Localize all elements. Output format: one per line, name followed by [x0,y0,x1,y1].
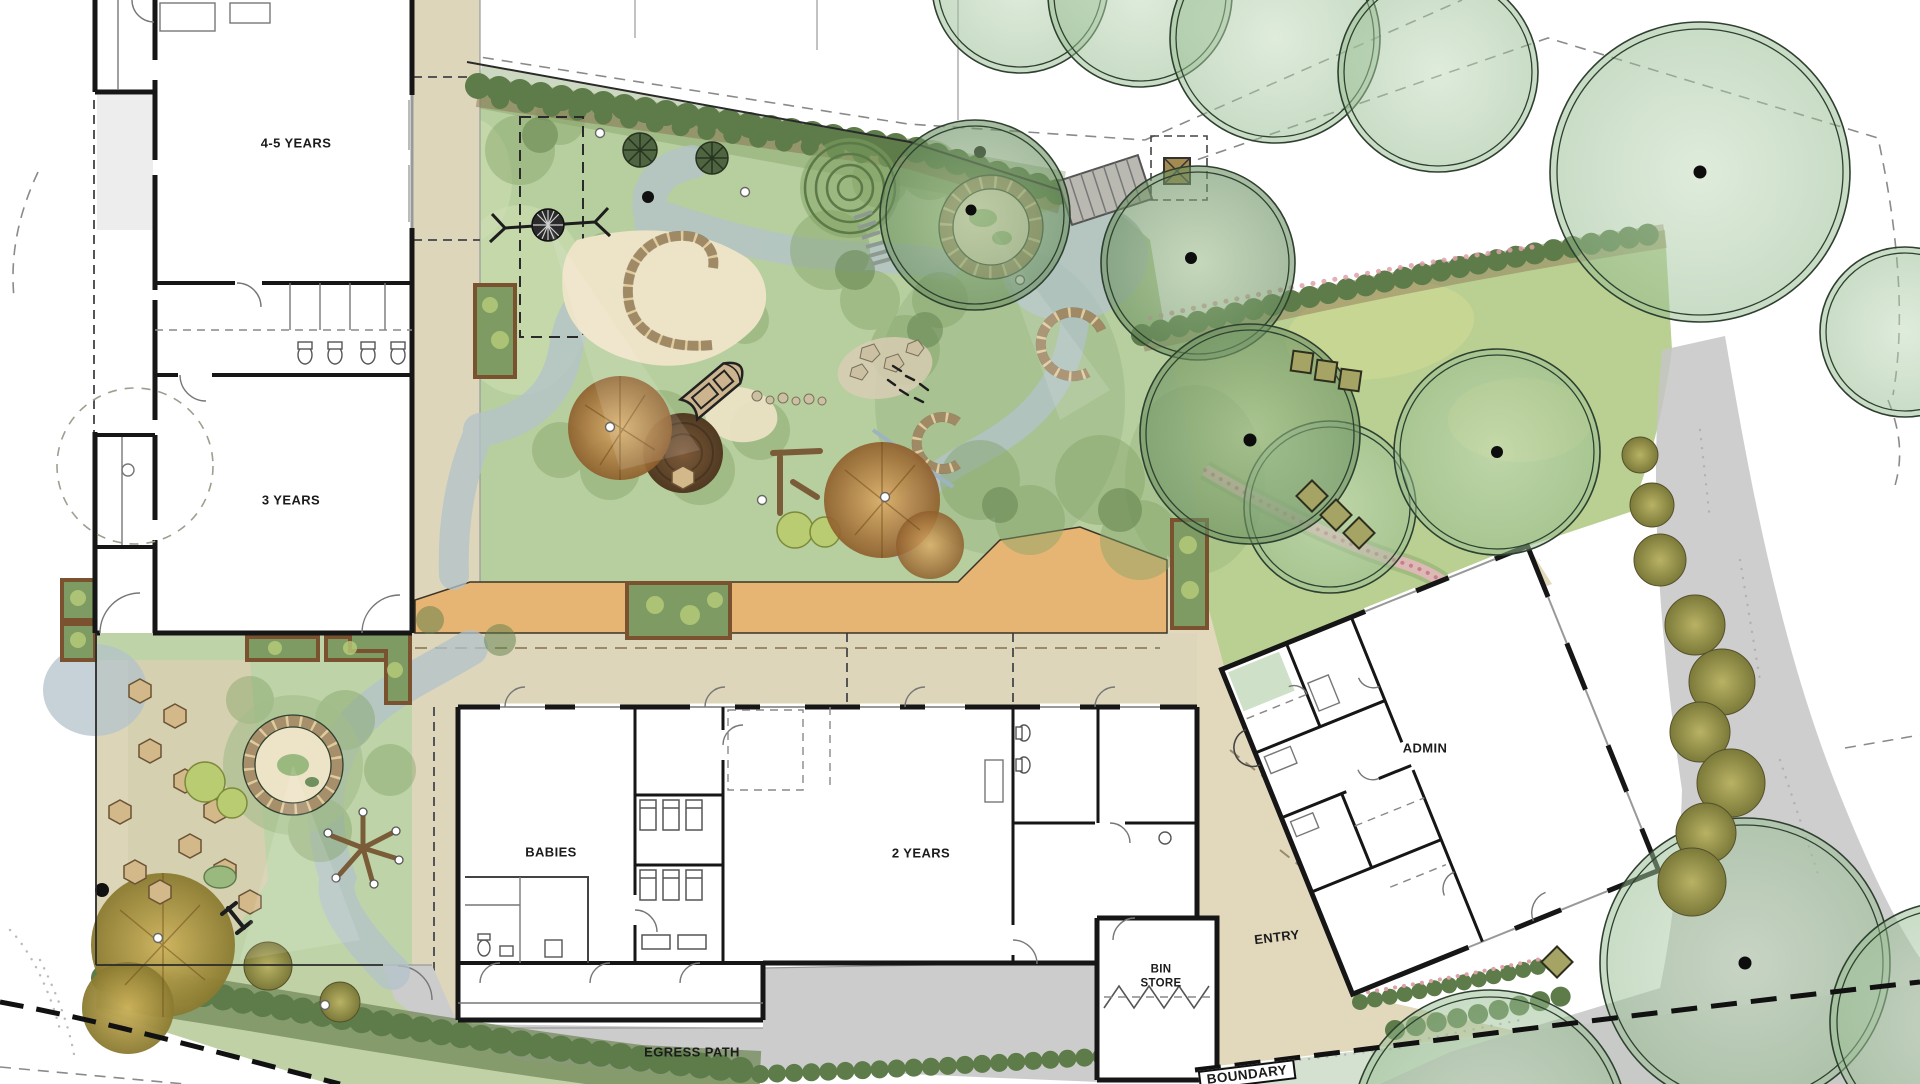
room-label-3-years: 3 YEARS [262,493,320,508]
room-label-bin-store: BIN STORE [1141,963,1182,992]
building-left-wing [57,0,412,633]
room-label-2-years: 2 YEARS [892,846,950,861]
annotation-egress-path: EGRESS PATH [644,1045,740,1060]
site-plan: 4-5 YEARS 3 YEARS BABIES 2 YEARS ADMIN B… [0,0,1920,1084]
site-plan-drawing [0,0,1920,1084]
room-label-admin: ADMIN [1403,741,1448,756]
room-label-4-5-years: 4-5 YEARS [261,136,332,151]
verandah-path-north [412,633,1197,707]
room-label-babies: BABIES [525,845,577,860]
